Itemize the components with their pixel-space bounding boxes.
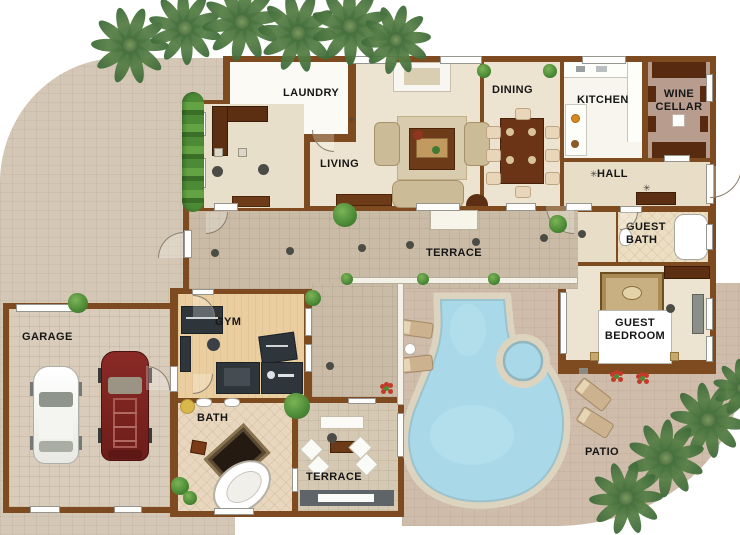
- window: [305, 344, 312, 372]
- bush-plant: [68, 293, 88, 313]
- window: [192, 289, 214, 295]
- window: [214, 508, 254, 515]
- spa-water: [504, 342, 542, 380]
- bush-plant: [341, 273, 353, 285]
- bush-plant: [543, 64, 557, 78]
- bush-plant: [183, 491, 197, 505]
- ceiling-light-dot: [211, 249, 219, 257]
- light-fixture-icon: [590, 170, 598, 179]
- window: [170, 366, 178, 392]
- window: [560, 292, 567, 354]
- window: [506, 203, 536, 211]
- window: [292, 468, 298, 492]
- flower-pot: [610, 370, 623, 382]
- window: [706, 74, 713, 102]
- floor-plan: LAUNDRY LIVING DINING KITCHEN WINE CELLA…: [0, 0, 740, 535]
- bush-plant: [305, 290, 321, 306]
- window: [184, 230, 192, 258]
- flower-pot: [380, 382, 393, 394]
- pergola-beam-vertical: [397, 283, 404, 405]
- side-table-round: [404, 343, 416, 355]
- flower-pot: [636, 372, 649, 384]
- pool-lounger: [400, 354, 433, 373]
- ceiling-light-dot: [326, 362, 334, 370]
- window: [440, 56, 482, 64]
- stool-2: [258, 164, 269, 175]
- window: [706, 224, 713, 250]
- window: [664, 155, 690, 162]
- bush-plant: [417, 273, 429, 285]
- ceiling-light-dot: [540, 234, 548, 242]
- desk-chair: [327, 433, 337, 443]
- light-fixture-icon: [348, 116, 356, 125]
- hedge: [182, 92, 204, 212]
- window: [30, 506, 60, 513]
- ceiling-light-dot: [406, 241, 414, 249]
- bush-plant: [488, 273, 500, 285]
- ceiling-light-dot: [472, 238, 480, 246]
- terrace-planter-box: [430, 210, 478, 230]
- pergola-beam-horizontal: [343, 277, 578, 284]
- bush-plant: [284, 393, 310, 419]
- ceiling-light-dot: [578, 230, 586, 238]
- ceiling-fan: [666, 304, 675, 313]
- window: [706, 298, 713, 330]
- stool-1: [212, 166, 223, 177]
- window: [305, 308, 312, 336]
- window: [397, 413, 404, 457]
- palm-tree: [362, 6, 430, 74]
- light-fixture-icon: [643, 184, 651, 193]
- palm-tree: [590, 462, 662, 534]
- bush-plant: [549, 215, 567, 233]
- bush-plant: [477, 64, 491, 78]
- ceiling-light-dot: [358, 244, 366, 252]
- window: [114, 506, 142, 513]
- window: [706, 336, 713, 362]
- window: [416, 203, 460, 211]
- window: [582, 56, 626, 64]
- window: [16, 304, 74, 312]
- window: [348, 398, 376, 404]
- bush-plant: [333, 203, 357, 227]
- ceiling-light-dot: [286, 247, 294, 255]
- window: [214, 203, 238, 211]
- palm-tree: [714, 360, 740, 416]
